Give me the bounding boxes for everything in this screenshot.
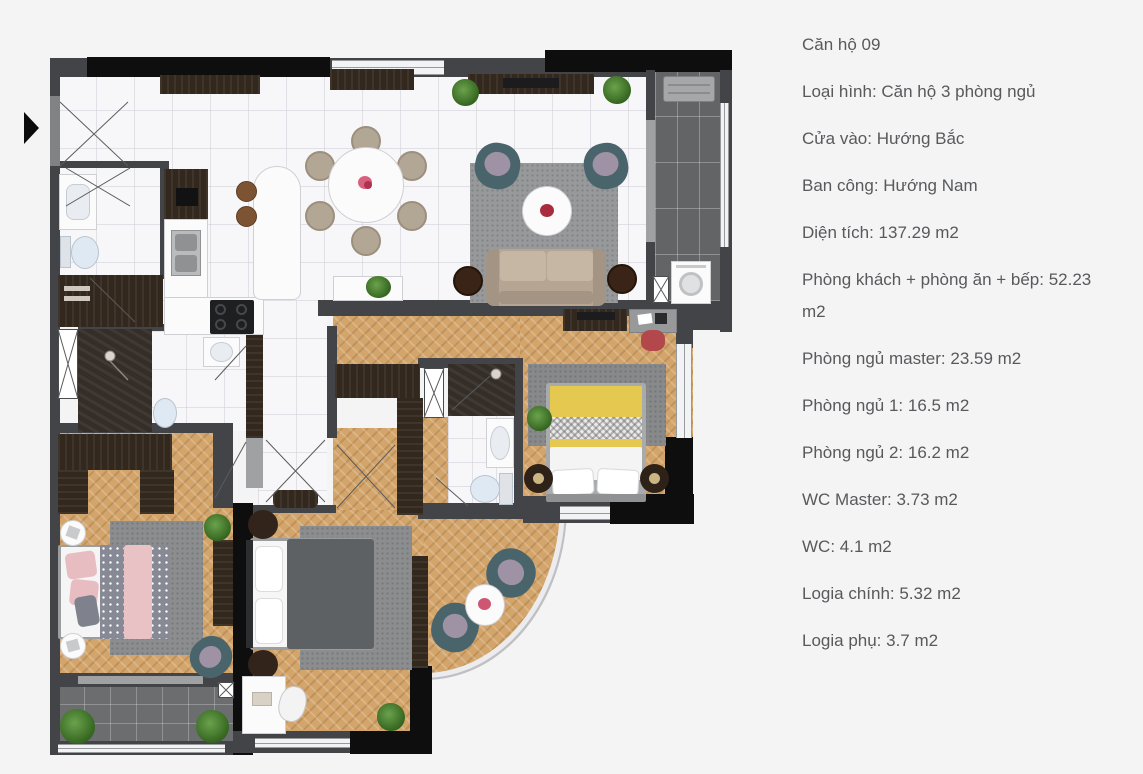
info-line-wc: WC: 4.1 m2 — [802, 531, 1102, 563]
info-line-logia-phu: Logia phụ: 3.7 m2 — [802, 625, 1102, 657]
info-line-entrance: Cửa vào: Hướng Bắc — [802, 123, 1102, 155]
info-line-type: Loại hình: Căn hộ 3 phòng ngủ — [802, 76, 1102, 108]
apartment-info-panel: Căn hộ 09 Loại hình: Căn hộ 3 phòng ngủ … — [802, 29, 1102, 672]
info-line-area: Diện tích: 137.29 m2 — [802, 217, 1102, 249]
info-line-master: Phòng ngủ master: 23.59 m2 — [802, 343, 1102, 375]
info-line-balcony: Ban công: Hướng Nam — [802, 170, 1102, 202]
info-line-wc-master: WC Master: 3.73 m2 — [802, 484, 1102, 516]
info-line-living: Phòng khách + phòng ăn + bếp: 52.23 m2 — [802, 264, 1102, 328]
floor-plan — [0, 0, 790, 774]
info-line-bedroom1: Phòng ngủ 1: 16.5 m2 — [802, 390, 1102, 422]
door-swing-lines — [0, 0, 790, 774]
screenshot-root: Căn hộ 09 Loại hình: Căn hộ 3 phòng ngủ … — [0, 0, 1143, 774]
apartment-title: Căn hộ 09 — [802, 29, 1102, 61]
info-line-bedroom2: Phòng ngủ 2: 16.2 m2 — [802, 437, 1102, 469]
info-line-logia-chinh: Logia chính: 5.32 m2 — [802, 578, 1102, 610]
